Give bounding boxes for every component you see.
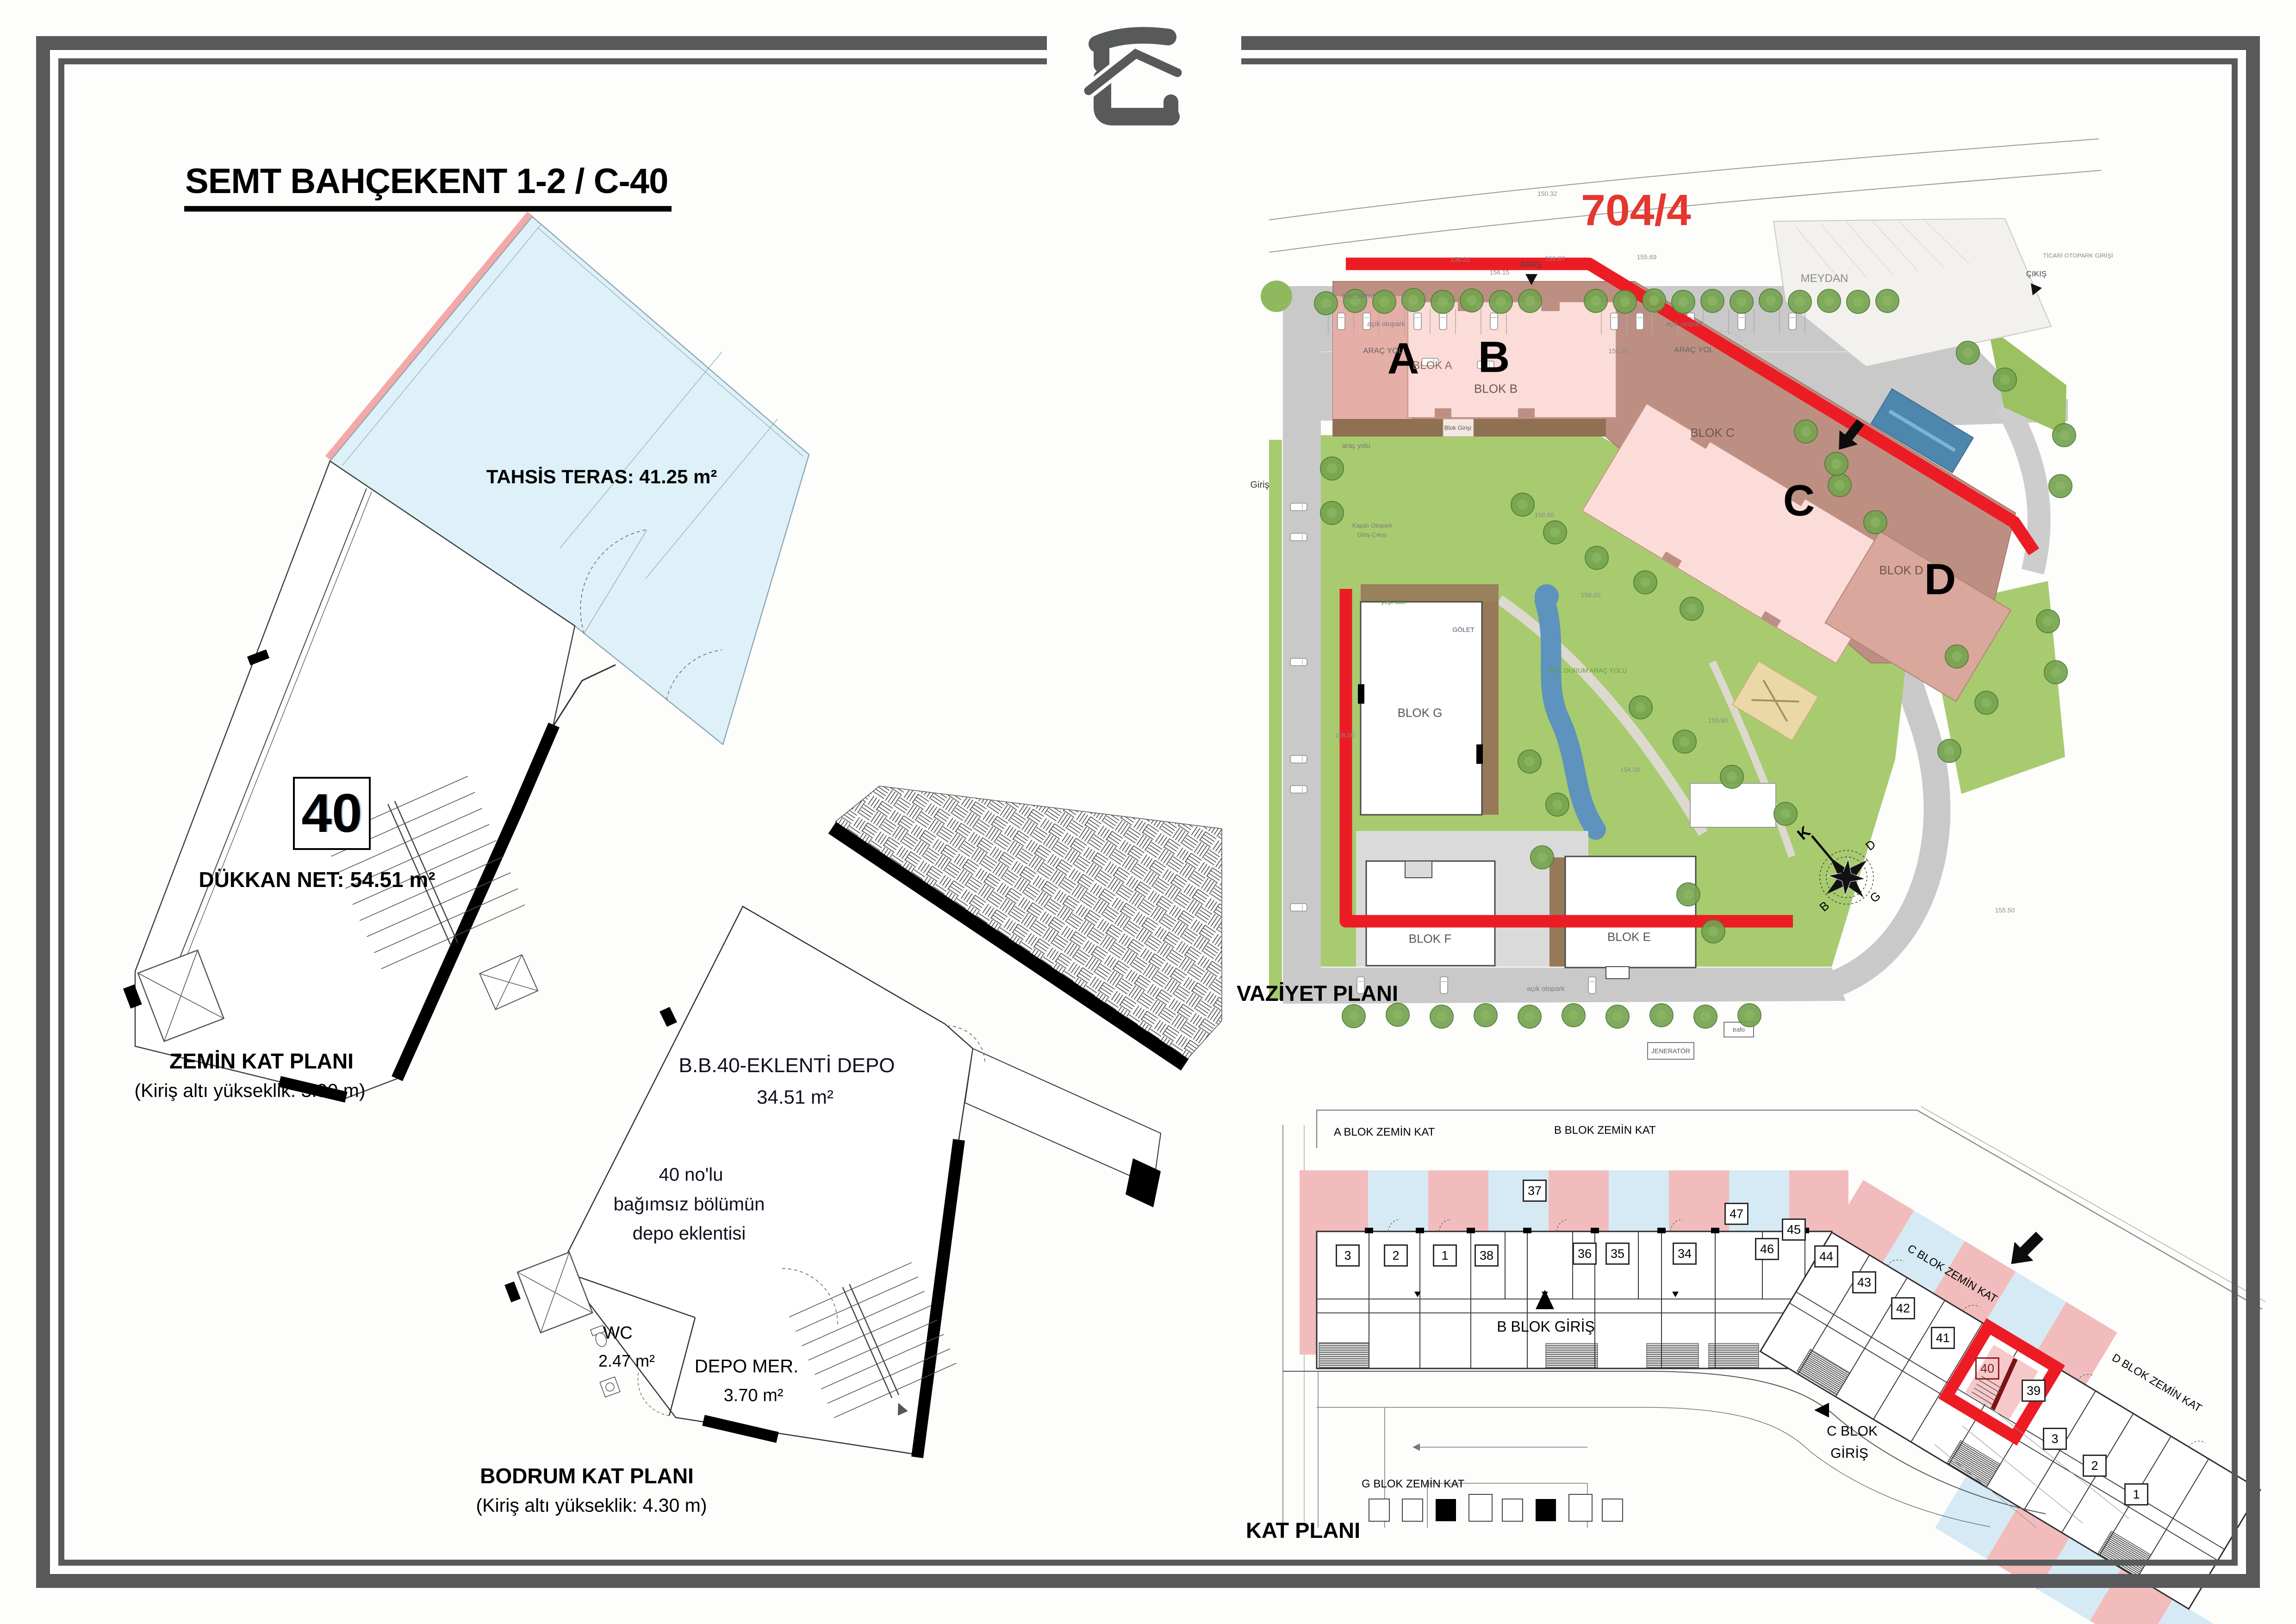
ground-floor-drawing (120, 214, 809, 1098)
plan-sheet: SEMT BAHÇEKENT 1-2 / C-40 TAHSİS TERAS: … (0, 0, 2296, 1624)
unit-43: 43 (1852, 1271, 1876, 1293)
unit-35: 35 (1605, 1243, 1630, 1265)
unit-46: 46 (1755, 1238, 1779, 1260)
elevation-label: 156.21 (1450, 256, 1470, 263)
trafo-label: trafo (1733, 1026, 1745, 1033)
acik-otopark-label-2: açık otopark (1666, 320, 1704, 328)
ground-plan-name: ZEMİN KAT PLANI (169, 1049, 354, 1074)
b-blok-giris-label: B BLOK GİRİŞ (1497, 1318, 1595, 1336)
annex-note-3: depo eklentisi (633, 1224, 746, 1244)
kapali-otopark-2: Giriş-Çıkışı (1357, 531, 1387, 538)
sink-fixture (600, 1377, 620, 1397)
yesil-alan-label: yeşil alan (1381, 599, 1406, 606)
blok-c-label: BLOK C (1690, 426, 1734, 440)
elevation-label: 156.15 (1490, 269, 1510, 276)
elevation-label: 156.87 (1545, 255, 1565, 262)
blok-a-label: BLOK A (1412, 359, 1452, 372)
storage-name: B.B.40-EKLENTİ DEPO (678, 1054, 895, 1077)
blok-d-label: BLOK D (1879, 563, 1923, 578)
blok-g-label: BLOK G (1398, 706, 1443, 720)
elevation-label: 155.80 (1708, 717, 1728, 724)
blok-f-label: BLOK F (1409, 932, 1451, 946)
acik-otopark-label-3: açık otopark (1527, 985, 1565, 993)
elevation-label: 158.00 (1335, 731, 1355, 739)
annex-note-1: 40 no'lu (659, 1165, 723, 1186)
annex-note-2: bağımsız bölümün (614, 1194, 765, 1215)
giris-top-label: GİRİŞ (1520, 260, 1542, 269)
kapali-otopark-1: Kapalı Otopark (1352, 522, 1393, 529)
elevation-label: 155.50 (1995, 906, 2015, 914)
floor-plan-name: KAT PLANI (1246, 1518, 1360, 1543)
acik-otopark-label-1: açık otopark (1367, 320, 1405, 328)
wc-label: WC (603, 1324, 632, 1343)
elevation-label: 155.69 (1637, 253, 1657, 261)
sheet-title: SEMT BAHÇEKENT 1-2 / C-40 (184, 161, 672, 212)
unit-2-c: 2 (2083, 1455, 2107, 1477)
meydan-label: MEYDAN (1801, 272, 1848, 285)
elevation-label: 154.00 (1620, 766, 1640, 773)
unit-37: 37 (1523, 1180, 1547, 1202)
b-blok-zemin-label: B BLOK ZEMİN KAT (1554, 1124, 1656, 1137)
g-block-row (1369, 1494, 1623, 1521)
wc-area: 2.47 m² (598, 1351, 655, 1371)
site-plan-name: VAZİYET PLANI (1237, 981, 1398, 1006)
blok-b-label: BLOK B (1474, 382, 1518, 396)
block-letter-d: D (1924, 555, 1956, 605)
basement-corridor (965, 1049, 1161, 1186)
basement-plan-height-note: (Kiriş altı yükseklik: 4.30 m) (476, 1495, 707, 1517)
unit-number-box: 40 (293, 777, 371, 850)
arac-yol-label-2: ARAÇ YOL (1674, 345, 1714, 355)
unit-41: 41 (1931, 1327, 1955, 1349)
giris-left-label: Giriş (1250, 480, 1269, 491)
unit-3-c: 3 (2043, 1428, 2067, 1450)
unit-3: 3 (1336, 1244, 1360, 1267)
unit-34: 34 (1673, 1243, 1697, 1265)
unit-38: 38 (1475, 1244, 1499, 1267)
ticari-otopark-label: TİCARİ OTOPARK GİRİŞİ (2043, 252, 2113, 259)
unit-1: 1 (1433, 1244, 1457, 1267)
block-letter-c: C (1783, 476, 1815, 526)
blok-girisi-label: Blok Girişi (1444, 425, 1472, 431)
c-blok-giris-label-1: C BLOK (1827, 1424, 1878, 1439)
floor-plan-drawing (1283, 1106, 2296, 1624)
unit-45: 45 (1782, 1218, 1806, 1241)
kaldirim-label: KALDIRIM (1342, 293, 1375, 300)
c-blok-giris-label-2: GİRİŞ (1830, 1446, 1868, 1462)
unit-2: 2 (1384, 1244, 1408, 1267)
unit-44: 44 (1814, 1245, 1838, 1268)
cikis-label: ÇIKIŞ (2026, 269, 2047, 279)
logo-background (1047, 0, 1241, 139)
block-letter-a: A (1388, 334, 1419, 384)
unit-42: 42 (1891, 1297, 1915, 1319)
elevation-label: 156.00 (1581, 591, 1601, 599)
blok-e-label: BLOK E (1607, 930, 1651, 944)
elevation-label: 158.80 (1535, 511, 1555, 518)
ground-plan-height-note: (Kiriş altı yükseklik: 3.90 m) (135, 1080, 366, 1102)
arac-yolu-label: araç yolu (1342, 442, 1370, 450)
elevation-label: 150.32 (1537, 190, 1557, 197)
unit-36: 36 (1573, 1243, 1597, 1265)
parcel-number: 704/4 (1581, 186, 1691, 236)
storage-stairs-area: 3.70 m² (724, 1386, 784, 1406)
block-e-building (1565, 856, 1696, 968)
block-letter-b: B (1478, 332, 1510, 383)
unit-39: 39 (2022, 1380, 2046, 1402)
golet-label: GÖLET (1452, 626, 1474, 633)
unit-1-c: 1 (2124, 1483, 2148, 1505)
g-blok-zemin-label: G BLOK ZEMİN KAT (1362, 1478, 1464, 1491)
unit-47: 47 (1724, 1203, 1748, 1225)
elevation-label: 156.35 (1609, 347, 1629, 355)
company-logo-icon (1047, 0, 1241, 139)
terrace-strip-b (1368, 1170, 1848, 1231)
jenerator-label: JENERATÖR (1651, 1047, 1690, 1055)
storage-stairs-label: DEPO MER. (695, 1356, 798, 1377)
storage-area: 34.51 m² (757, 1086, 834, 1108)
terrace-label: TAHSİS TERAS: 41.25 m² (486, 466, 717, 488)
arac-yol-label-1: ARAÇ YOL (1363, 346, 1403, 356)
basement-plan-name: BODRUM KAT PLANI (480, 1463, 694, 1488)
shop-net-label: DÜKKAN NET: 54.51 m² (199, 867, 435, 892)
unit-40-highlighted: 40 (1975, 1357, 1999, 1380)
a-blok-zemin-label: A BLOK ZEMİN KAT (1334, 1126, 1435, 1139)
acil-durum-label: ACİL DURUM ARAÇ YOLU (1548, 667, 1627, 674)
